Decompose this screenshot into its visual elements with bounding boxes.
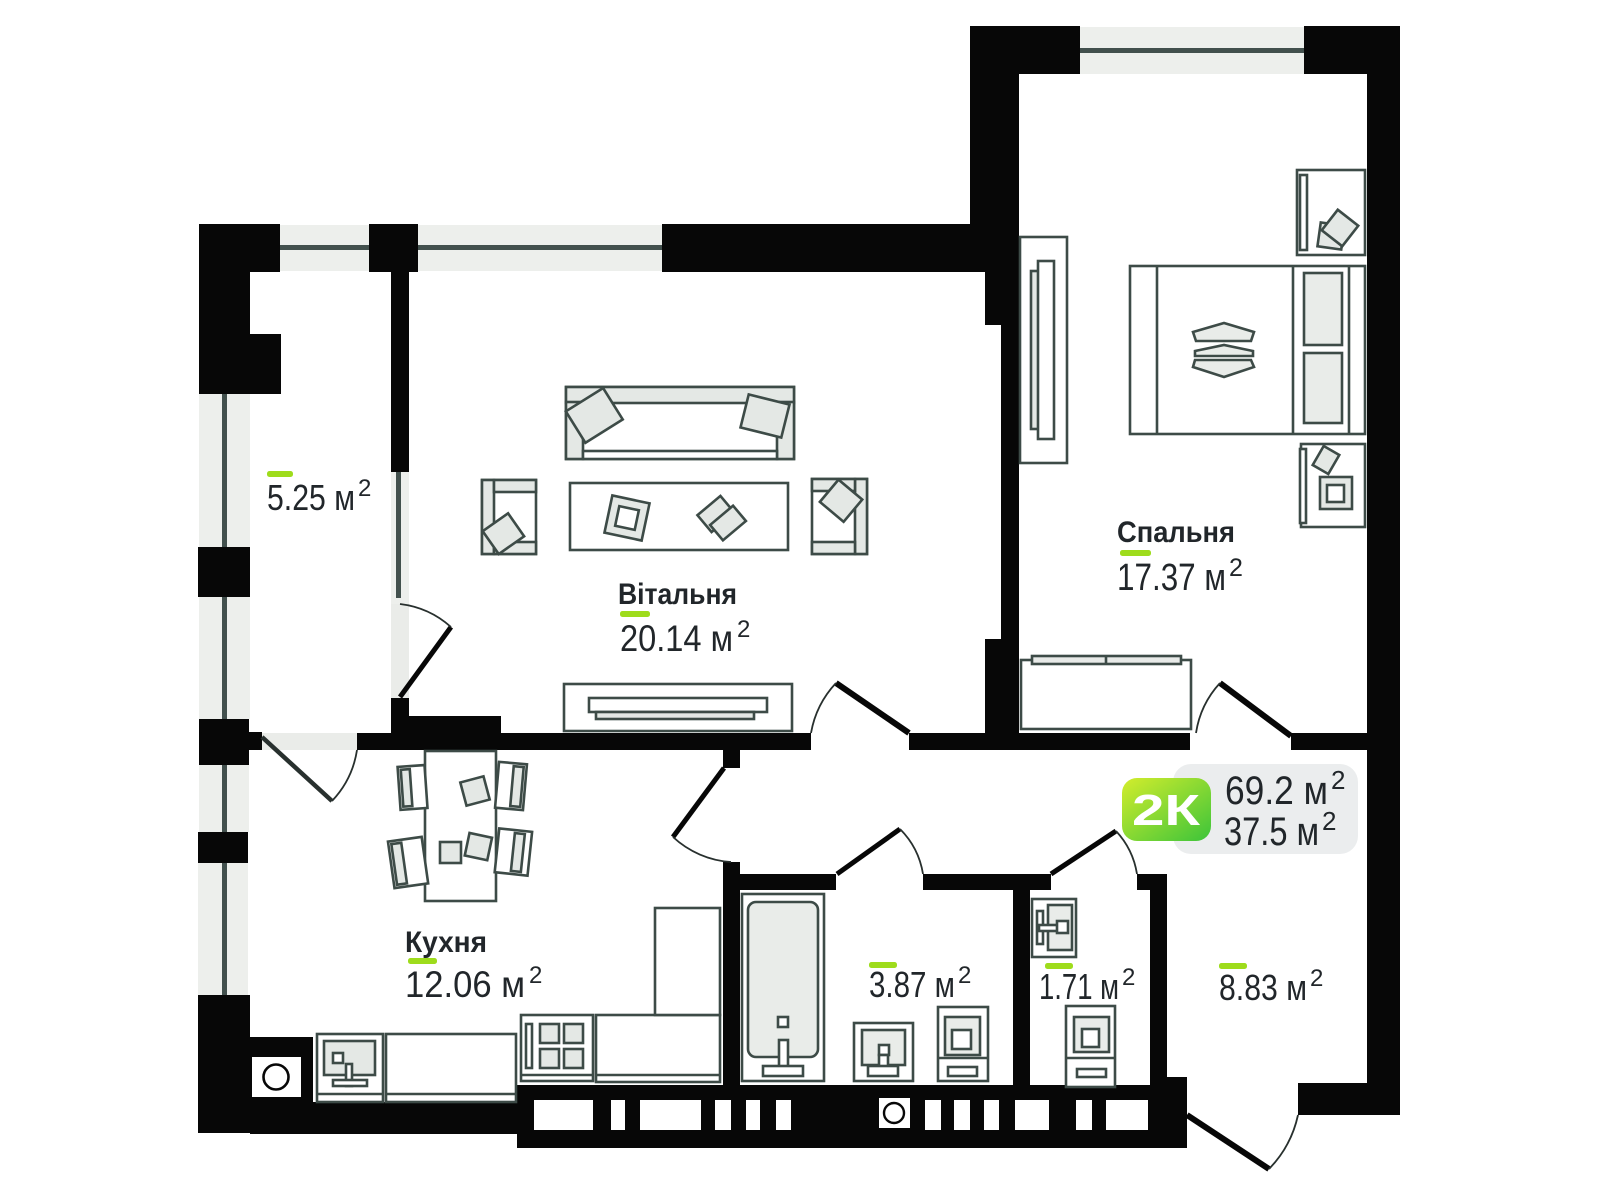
svg-text:Кухня: Кухня <box>405 926 487 959</box>
svg-text:20.14 м: 20.14 м <box>620 618 733 659</box>
svg-text:2: 2 <box>358 475 371 502</box>
svg-text:2: 2 <box>737 616 750 643</box>
svg-text:17.37 м: 17.37 м <box>1117 557 1226 599</box>
svg-text:Спальня: Спальня <box>1117 516 1235 549</box>
svg-text:2: 2 <box>1331 765 1345 795</box>
svg-text:2: 2 <box>1122 964 1135 991</box>
svg-text:2: 2 <box>1310 965 1323 992</box>
svg-text:Вітальня: Вітальня <box>618 578 737 611</box>
svg-text:3.87 м: 3.87 м <box>869 964 955 1005</box>
svg-text:2: 2 <box>1229 554 1243 582</box>
svg-text:12.06 м: 12.06 м <box>405 964 525 1005</box>
svg-text:5.25 м: 5.25 м <box>267 477 355 518</box>
svg-text:37.5 м: 37.5 м <box>1224 810 1319 854</box>
svg-text:8.83 м: 8.83 м <box>1219 967 1307 1008</box>
svg-text:2: 2 <box>958 962 971 989</box>
svg-text:1.71 м: 1.71 м <box>1039 966 1119 1007</box>
svg-text:2: 2 <box>529 962 542 989</box>
svg-text:2К: 2К <box>1132 786 1200 835</box>
svg-text:2: 2 <box>1322 806 1336 836</box>
svg-text:69.2 м: 69.2 м <box>1225 769 1328 813</box>
